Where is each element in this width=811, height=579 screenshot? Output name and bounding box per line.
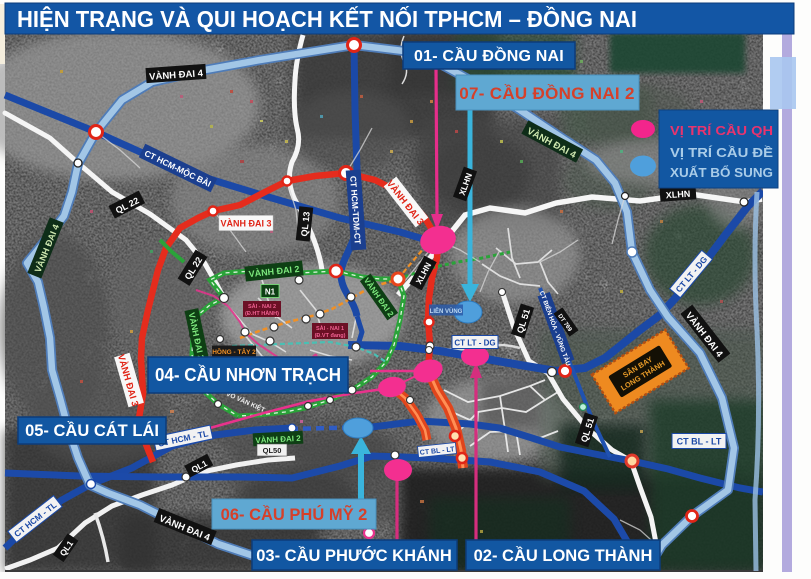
- svg-text:02- CẦU LONG THÀNH: 02- CẦU LONG THÀNH: [474, 546, 653, 565]
- svg-text:VỊ TRÍ CẦU QH: VỊ TRÍ CẦU QH: [670, 123, 773, 138]
- svg-text:06- CẦU PHÚ MỸ 2: 06- CẦU PHÚ MỸ 2: [221, 504, 368, 524]
- svg-text:07- CẦU ĐỒNG NAI 2: 07- CẦU ĐỒNG NAI 2: [459, 84, 634, 103]
- svg-text:(Đ.HT HÀNH): (Đ.HT HÀNH): [245, 310, 279, 317]
- svg-text:(Đ.VT đang): (Đ.VT đang): [315, 333, 346, 339]
- svg-text:VỊ TRÍ CẦU ĐỀ: VỊ TRÍ CẦU ĐỀ: [670, 145, 773, 160]
- svg-text:CT BL - LT: CT BL - LT: [677, 437, 722, 447]
- svg-text:CT LT - DG: CT LT - DG: [454, 339, 495, 348]
- svg-text:SÀI - NAI 1: SÀI - NAI 1: [316, 325, 344, 332]
- svg-text:QL50: QL50: [263, 446, 282, 455]
- svg-text:03- CẦU PHƯỚC KHÁNH: 03- CẦU PHƯỚC KHÁNH: [256, 546, 452, 565]
- svg-text:XLHN: XLHN: [665, 189, 690, 201]
- svg-text:N1: N1: [265, 288, 276, 297]
- svg-text:SÀI - NAI 2: SÀI - NAI 2: [248, 303, 276, 310]
- svg-text:04- CẦU NHƠN TRẠCH: 04- CẦU NHƠN TRẠCH: [155, 364, 341, 385]
- svg-text:01- CẦU ĐỒNG NAI: 01- CẦU ĐỒNG NAI: [414, 46, 564, 65]
- svg-text:VÀNH ĐAI 3: VÀNH ĐAI 3: [220, 219, 271, 229]
- svg-text:05- CẦU CÁT LÁI: 05- CẦU CÁT LÁI: [25, 421, 159, 440]
- svg-text:HIỆN TRẠNG VÀ QUI HOẠCH KẾT NỐ: HIỆN TRẠNG VÀ QUI HOẠCH KẾT NỐI TPHCM – …: [17, 5, 637, 32]
- svg-text:LIÊN VÙNG: LIÊN VÙNG: [430, 307, 463, 315]
- svg-text:XUẤT BỔ SUNG: XUẤT BỔ SUNG: [670, 165, 773, 180]
